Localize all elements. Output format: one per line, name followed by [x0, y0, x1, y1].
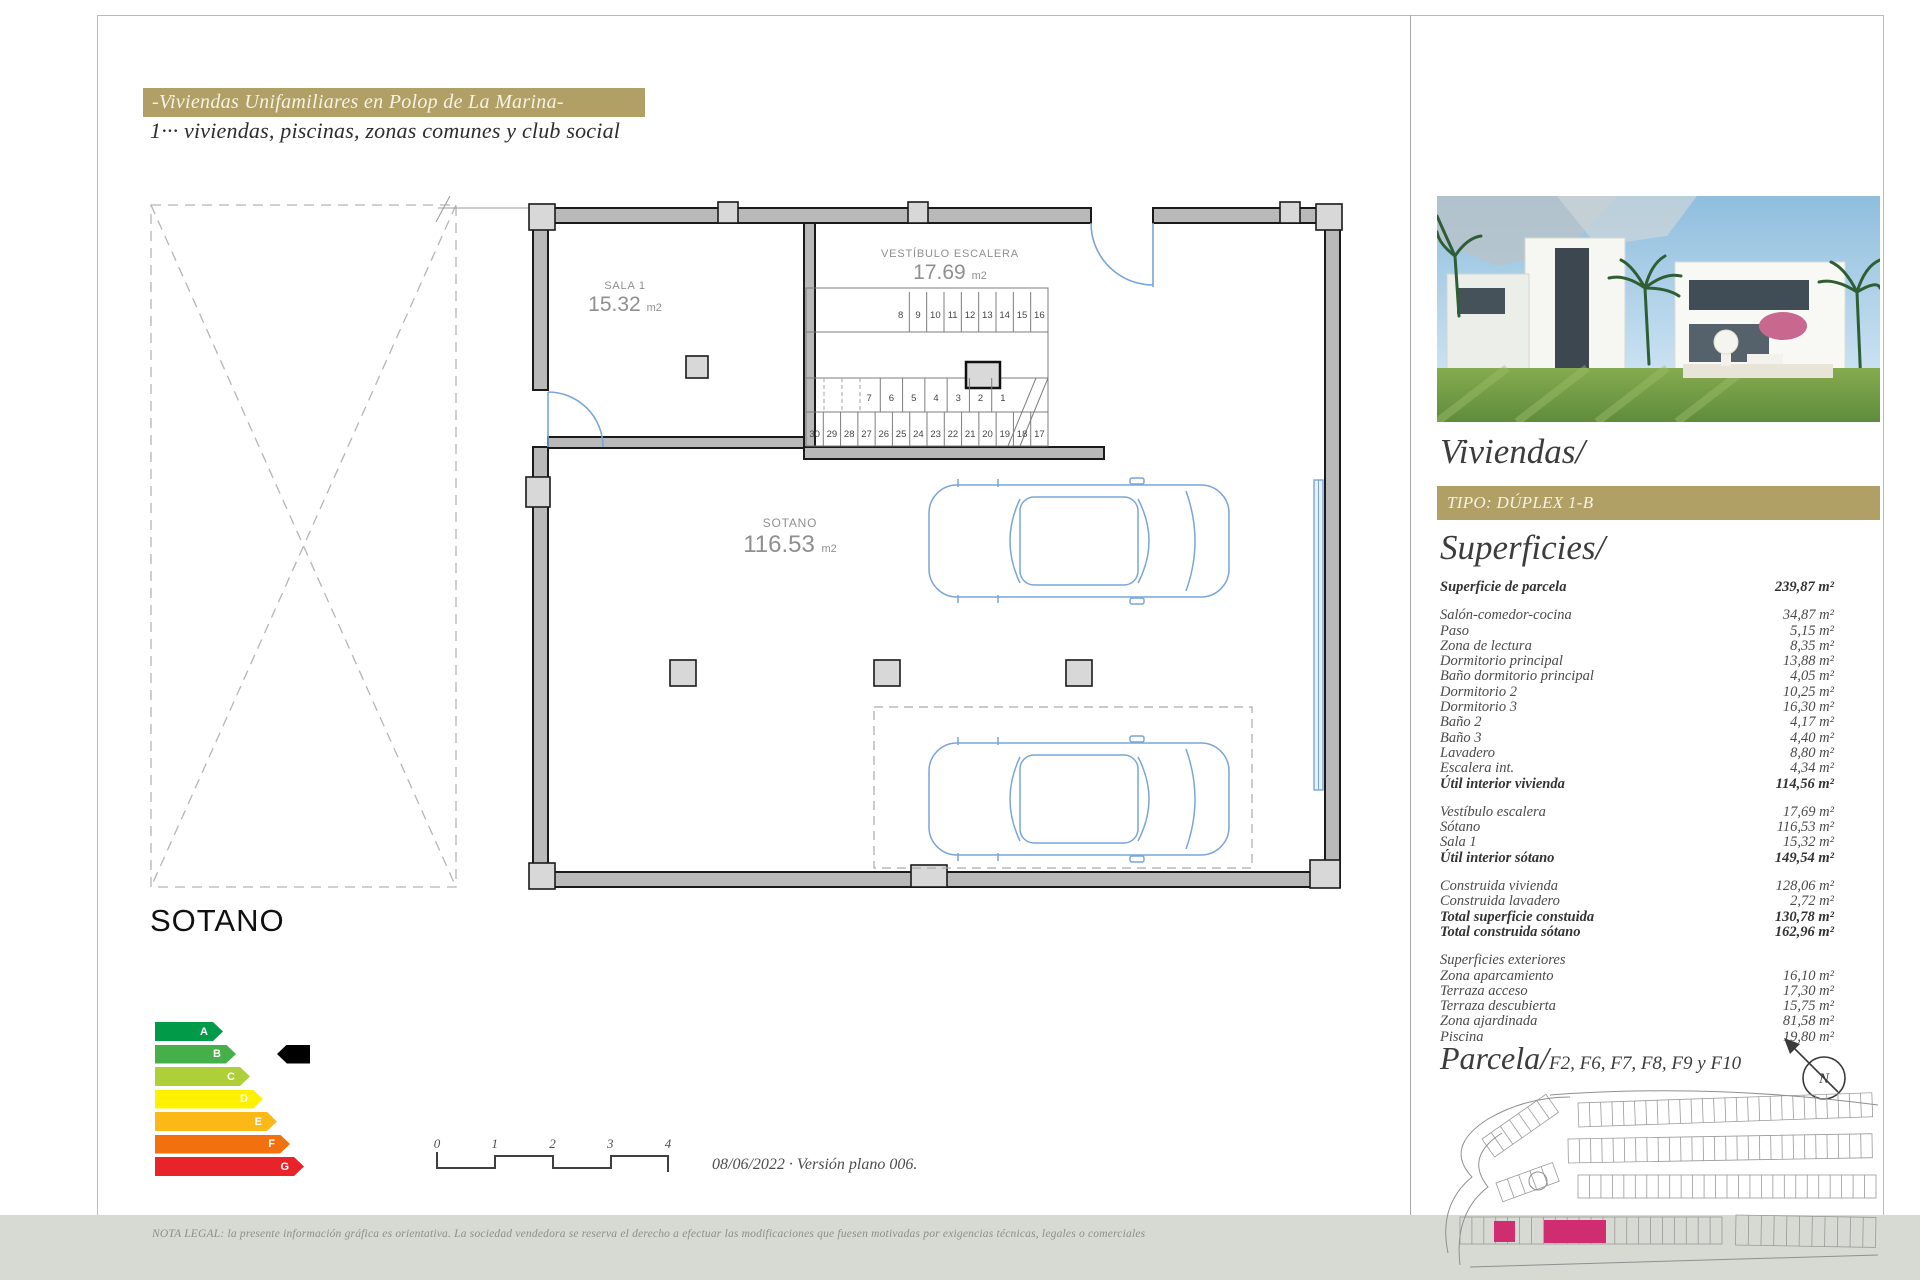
- villa-photo: [1437, 196, 1880, 422]
- energy-bar-a: A: [155, 1022, 223, 1041]
- superficies-row: Construida vivienda128,06 m²: [1440, 879, 1834, 894]
- svg-text:23: 23: [930, 429, 941, 440]
- car-drawing: [929, 478, 1229, 604]
- svg-text:11: 11: [948, 310, 958, 321]
- svg-text:25: 25: [896, 429, 907, 440]
- energy-rating-chart: ABCDEFG: [155, 1022, 355, 1180]
- superficies-row: Dormitorio 316,30 m²: [1440, 700, 1834, 715]
- viviendas-heading: Viviendas/: [1440, 432, 1585, 472]
- energy-bar-b: B: [155, 1045, 236, 1064]
- svg-text:30: 30: [809, 429, 820, 440]
- superficies-row: Zona ajardinada81,58 m²: [1440, 1014, 1834, 1029]
- svg-text:13: 13: [982, 310, 993, 321]
- stair-step-numbers: 8910111213141516765432130292827262524232…: [809, 292, 1044, 446]
- energy-bar-e: E: [155, 1112, 277, 1131]
- parcela-heading: Parcela/F2, F6, F7, F8, F9 y F10: [1440, 1040, 1741, 1077]
- project-title-bar: -Viviendas Unifamiliares en Polop de La …: [143, 88, 645, 117]
- superficies-row: Total construida sótano162,96 m²: [1440, 925, 1834, 940]
- superficies-row: Lavadero8,80 m²: [1440, 746, 1834, 761]
- svg-text:27: 27: [861, 429, 872, 440]
- superficies-row: Sala 115,32 m²: [1440, 835, 1834, 850]
- superficies-row: Zona de lectura8,35 m²: [1440, 639, 1834, 654]
- superficies-row: Construida lavadero2,72 m²: [1440, 894, 1834, 909]
- svg-text:2: 2: [978, 393, 983, 404]
- superficies-row: Escalera int.4,34 m²: [1440, 761, 1834, 776]
- svg-text:24: 24: [913, 429, 924, 440]
- svg-text:6: 6: [889, 393, 894, 404]
- parcela-plots: F2, F6, F7, F8, F9 y F10: [1549, 1053, 1741, 1074]
- parcela-title: Parcela/: [1440, 1040, 1549, 1076]
- energy-bar-f: F: [155, 1135, 290, 1154]
- superficies-row: Paso5,15 m²: [1440, 624, 1834, 639]
- superficies-row: Salón-comedor-cocina34,87 m²: [1440, 608, 1834, 623]
- svg-text:16: 16: [1034, 310, 1045, 321]
- superficies-row: Baño 24,17 m²: [1440, 715, 1834, 730]
- svg-text:14: 14: [999, 310, 1010, 321]
- svg-text:8: 8: [898, 310, 903, 321]
- energy-bar-d: D: [155, 1090, 263, 1109]
- superficies-row: Total superficie constuida130,78 m²: [1440, 910, 1834, 925]
- room-label-vestibulo: VESTÍBULO ESCALERA 17.69 m2: [840, 248, 1060, 285]
- svg-text:12: 12: [965, 310, 976, 321]
- svg-text:3: 3: [956, 393, 961, 404]
- energy-bar-c: C: [155, 1067, 250, 1086]
- superficies-row: Baño 34,40 m²: [1440, 731, 1834, 746]
- svg-text:1: 1: [1000, 393, 1005, 404]
- tipo-bar: TIPO: DÚPLEX 1-B: [1437, 486, 1880, 520]
- legal-note: NOTA LEGAL: la presente información gráf…: [152, 1228, 1145, 1240]
- highlighted-parcels: [1494, 1220, 1606, 1243]
- svg-text:21: 21: [965, 429, 976, 440]
- svg-text:18: 18: [1017, 429, 1028, 440]
- frame-right: [1883, 15, 1884, 1215]
- superficies-table: Superficie de parcela239,87 m²Salón-come…: [1440, 580, 1834, 1058]
- panel-divider: [1410, 15, 1411, 1215]
- superficies-row: Útil interior sótano149,54 m²: [1440, 851, 1834, 866]
- dashed-area: [151, 205, 456, 887]
- svg-text:0: 0: [434, 1138, 441, 1151]
- superficies-row: Dormitorio 210,25 m²: [1440, 685, 1834, 700]
- svg-text:4: 4: [665, 1138, 672, 1151]
- energy-bar-g: G: [155, 1157, 304, 1176]
- floor-title: SOTANO: [150, 903, 285, 939]
- svg-text:15: 15: [1017, 310, 1028, 321]
- svg-text:7: 7: [866, 393, 871, 404]
- svg-text:10: 10: [930, 310, 941, 321]
- svg-text:28: 28: [844, 429, 855, 440]
- svg-text:2: 2: [549, 1138, 556, 1151]
- superficies-row: Dormitorio principal13,88 m²: [1440, 654, 1834, 669]
- superficies-row: Zona aparcamiento16,10 m²: [1440, 969, 1834, 984]
- parcel-map: [1430, 1085, 1880, 1270]
- svg-text:5: 5: [911, 393, 916, 404]
- svg-text:22: 22: [948, 429, 959, 440]
- room-label-sotano: SOTANO 116.53 m2: [690, 516, 890, 559]
- frame-top: [97, 15, 1883, 16]
- svg-text:9: 9: [915, 310, 920, 321]
- superficies-row: Sótano116,53 m²: [1440, 820, 1834, 835]
- scale-bar: 01234: [430, 1138, 710, 1186]
- svg-text:20: 20: [982, 429, 993, 440]
- parking-bay-dashed: [874, 707, 1252, 868]
- version-note: 08/06/2022 · Versión plano 006.: [712, 1156, 917, 1174]
- car-drawing: [929, 736, 1229, 862]
- svg-text:17: 17: [1034, 429, 1045, 440]
- superficies-row: Vestíbulo escalera17,69 m²: [1440, 805, 1834, 820]
- svg-text:26: 26: [878, 429, 889, 440]
- stair-landing: [966, 362, 1000, 388]
- superficies-row: Superficies exteriores: [1440, 953, 1834, 968]
- project-subtitle: 1··· viviendas, piscinas, zonas comunes …: [150, 118, 620, 144]
- svg-text:4: 4: [933, 393, 938, 404]
- superficies-row: Útil interior vivienda114,56 m²: [1440, 777, 1834, 792]
- superficies-row: Terraza descubierta15,75 m²: [1440, 999, 1834, 1014]
- superficies-row: Superficie de parcela239,87 m²: [1440, 580, 1834, 595]
- svg-text:19: 19: [999, 429, 1010, 440]
- svg-text:29: 29: [827, 429, 838, 440]
- svg-text:1: 1: [492, 1138, 499, 1151]
- svg-text:3: 3: [606, 1138, 614, 1151]
- superficies-row: Baño dormitorio principal4,05 m²: [1440, 669, 1834, 684]
- superficies-row: Terraza acceso17,30 m²: [1440, 984, 1834, 999]
- superficies-heading: Superficies/: [1440, 528, 1605, 568]
- plan-sheet: { "header": { "title": "-Viviendas Unifa…: [0, 0, 1920, 1280]
- frame-left: [97, 15, 98, 1215]
- room-label-sala1: SALA 1 15.32 m2: [540, 280, 710, 317]
- window-strip: [1314, 480, 1323, 790]
